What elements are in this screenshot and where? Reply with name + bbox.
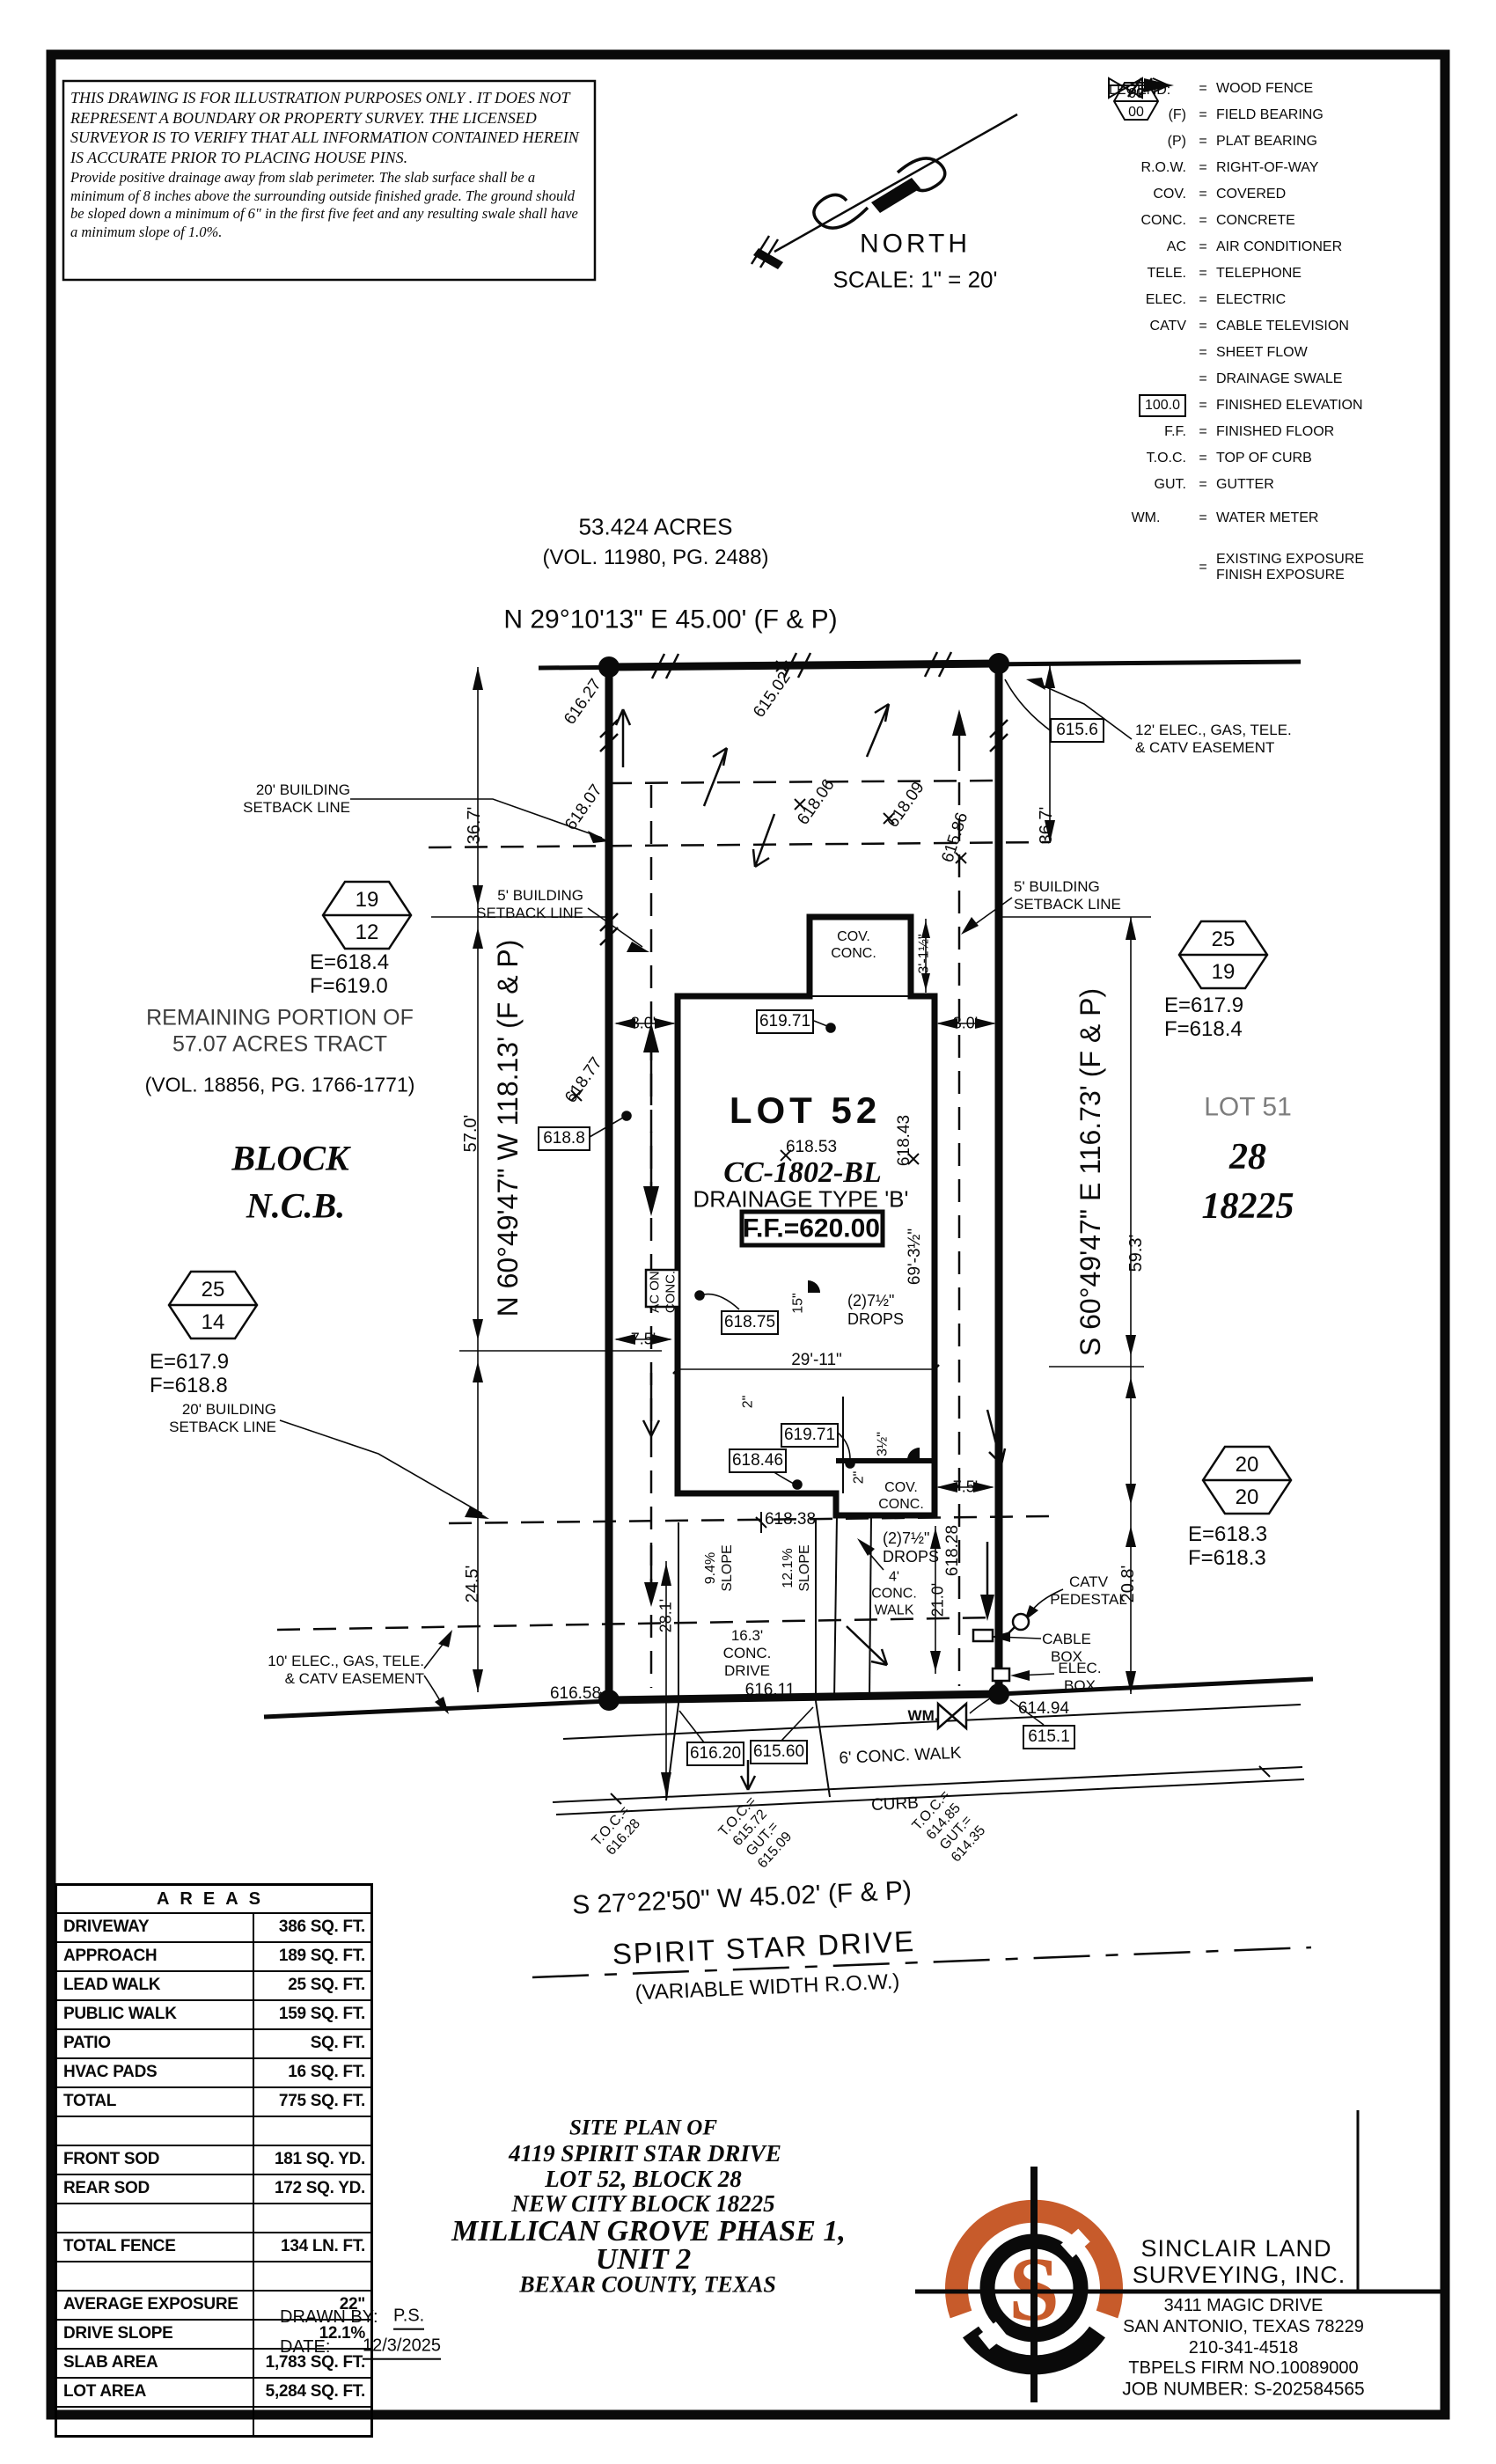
bearing-north: N 29°10'13" E 45.00' (F & P) [503, 604, 837, 634]
legend-eq: = [1190, 451, 1216, 466]
finished-elev-615-1: 615.1 [1028, 1727, 1070, 1747]
dim-21-0: 21.0' [928, 1583, 947, 1617]
spot-618-28: 618.28 [943, 1525, 963, 1576]
legend-eq: = [1190, 239, 1216, 255]
elec-box-symbol [993, 1668, 1009, 1681]
row-value: 189 SQ. FT. [253, 1943, 370, 1970]
water-meter-icon: WM. [1105, 512, 1190, 524]
legend-sym: AC [1105, 239, 1190, 255]
legend-eq: = [1190, 81, 1216, 97]
firm-name-1: SINCLAIR LAND [1140, 2235, 1331, 2263]
legend-row: WM. =WATER METER [1105, 498, 1443, 539]
row-value: SQ. FT. [253, 2030, 370, 2057]
legend-row: CATV=CABLE TELEVISION [1105, 313, 1443, 340]
bearing-west: N 60°49'47" W 118.13' (F & P) [492, 940, 525, 1317]
lot51-ncb-number: 18225 [1202, 1185, 1294, 1229]
row-label: LOT AREA [57, 2379, 253, 2406]
row-label [57, 2408, 253, 2435]
finished-elev-618-8: 618.8 [543, 1129, 585, 1148]
table-row: TOTAL FENCE134 LN. FT. [57, 2233, 370, 2262]
row-value: 181 SQ. YD. [253, 2146, 370, 2174]
dim-36-7-right: 36.7' [1037, 807, 1058, 845]
legend-eq: = [1190, 319, 1216, 334]
table-row: APPROACH189 SQ. FT. [57, 1943, 370, 1972]
drainage-type: DRAINAGE TYPE 'B' [693, 1186, 909, 1214]
dim-8-0-right: 8.0' [953, 1014, 978, 1032]
spot-614-94: 614.94 [1018, 1699, 1069, 1719]
easement-12ft-label: 12' ELEC., GAS, TELE. & CATV EASEMENT [1135, 722, 1292, 757]
legend-eq: = [1190, 160, 1216, 176]
legend: LEGEND: =WOOD FENCE (F)=FIELD BEARING (P… [1105, 76, 1443, 597]
row-label: HVAC PADS [57, 2059, 253, 2086]
disclaimer-caps: THIS DRAWING IS FOR ILLUSTRATION PURPOSE… [70, 88, 586, 167]
row-label: FRONT SOD [57, 2146, 253, 2174]
row-value [253, 2204, 370, 2232]
row-value [253, 2262, 370, 2290]
slope-12-1-label: 12.1% SLOPE [781, 1544, 814, 1591]
firm-tbpels: TBPELS FIRM NO.10089000 [1128, 2358, 1358, 2380]
finished-elev-615-6: 615.6 [1056, 721, 1098, 740]
water-meter-symbol [938, 1704, 966, 1728]
hex-se-bottom: 20 [1236, 1485, 1259, 1510]
water-meter-label: WM. [908, 1707, 939, 1725]
legend-row: 00 00 = EXISTING EXPOSUREFINISH EXPOSURE [1105, 539, 1443, 597]
legend-def: CONCRETE [1216, 213, 1295, 229]
legend-eq: = [1190, 187, 1216, 202]
hex-ne-finish: F=618.4 [1164, 1017, 1243, 1042]
dim-2in-a: 2" [741, 1396, 758, 1409]
dim-59-3: 59.3' [1126, 1235, 1148, 1272]
legend-def: EXISTING EXPOSUREFINISH EXPOSURE [1216, 552, 1364, 583]
tract-volume: (VOL. 11980, PG. 2488) [542, 546, 768, 570]
legend-def: TOP OF CURB [1216, 451, 1312, 466]
legend-sym: CATV [1105, 319, 1190, 334]
legend-eq: = [1190, 266, 1216, 282]
drawn-by-value: P.S. [393, 2306, 424, 2330]
row-label: REAR SOD [57, 2175, 253, 2203]
dim-2in-b: 2" [852, 1471, 869, 1485]
legend-eq: = [1190, 345, 1216, 361]
legend-eq: = [1190, 371, 1216, 387]
walk-4ft-label: 4' CONC. WALK [871, 1570, 917, 1620]
legend-def: RIGHT-OF-WAY [1216, 160, 1318, 176]
easement-10ft-label: 10' ELEC., GAS, TELE. & CATV EASEMENT [268, 1653, 424, 1688]
dim-36-7-left: 36.7' [465, 807, 486, 845]
catv-pedestal-symbol [1013, 1614, 1029, 1630]
site-plan-sheet: S THIS DRAWING IS FOR ILLUSTRATION PURPO… [0, 0, 1496, 2464]
setback-20ft-label-top: 20' BUILDING SETBACK LINE [243, 781, 350, 817]
table-row [57, 2408, 370, 2435]
firm-phone: 210-341-4518 [1189, 2338, 1299, 2359]
hex-w-top: 25 [202, 1278, 225, 1302]
title-line-1: SITE PLAN OF [569, 2115, 717, 2141]
finished-elev-615-60: 615.60 [753, 1742, 804, 1762]
legend-sym: GUT. [1105, 477, 1190, 493]
hex-nw-finish: F=619.0 [310, 974, 388, 999]
legend-row: (P)=PLAT BEARING [1105, 128, 1443, 155]
firm-address-1: 3411 MAGIC DRIVE [1164, 2296, 1324, 2317]
dim-7-5-right: 7.5' [953, 1478, 978, 1496]
dim-7-5-left: 7.5' [631, 1330, 656, 1348]
legend-row: GUT.=GUTTER [1105, 472, 1443, 498]
spot-616-11: 616.11 [745, 1681, 796, 1700]
legend-sym: (P) [1105, 134, 1190, 150]
spot-618-43: 618.43 [895, 1115, 914, 1166]
disclaimer-drainage-note: Provide positive drainage away from slab… [70, 169, 586, 242]
remaining-tract-label: REMAINING PORTION OF 57.07 ACRES TRACT [146, 1006, 414, 1058]
hex-nw-existing: E=618.4 [310, 950, 389, 975]
row-value: 775 SQ. FT. [253, 2088, 370, 2116]
svg-text:00: 00 [1128, 105, 1144, 120]
lot-51-label: LOT 51 [1204, 1091, 1292, 1122]
drops-label-front: (2)7½" DROPS [883, 1529, 939, 1566]
legend-eq: = [1190, 107, 1216, 123]
table-row: PATIOSQ. FT. [57, 2030, 370, 2059]
lot51-block-number: 28 [1229, 1136, 1266, 1180]
row-label [57, 2204, 253, 2232]
table-row: PUBLIC WALK159 SQ. FT. [57, 2001, 370, 2030]
setback-5ft-label-left: 5' BUILDING SETBACK LINE [476, 887, 583, 922]
legend-row: R.O.W.=RIGHT-OF-WAY [1105, 155, 1443, 181]
hex-w-existing: E=617.9 [150, 1350, 229, 1375]
remaining-tract-volume: (VOL. 18856, PG. 1766-1771) [145, 1073, 415, 1096]
dim-57-0: 57.0' [461, 1115, 482, 1153]
cov-conc-rear-label: COV. CONC. [831, 929, 876, 963]
title-county: BEXAR COUNTY, TEXAS [519, 2272, 776, 2299]
hex-se-finish: F=618.3 [1188, 1546, 1266, 1571]
legend-eq: = [1190, 560, 1216, 576]
drawn-by-label: DRAWN BY: [280, 2307, 378, 2328]
row-value [253, 2408, 370, 2435]
table-row [57, 2117, 370, 2146]
row-label: DRIVEWAY [57, 1914, 253, 1941]
row-label: PATIO [57, 2030, 253, 2057]
finished-elev-618-75: 618.75 [724, 1313, 775, 1332]
table-row: TOTAL775 SQ. FT. [57, 2088, 370, 2117]
row-value: 134 LN. FT. [253, 2233, 370, 2261]
legend-def: DRAINAGE SWALE [1216, 371, 1342, 387]
date-label: DATE: [280, 2337, 330, 2358]
dim-8-0-left: 8.0' [631, 1014, 656, 1032]
dim-15in: 15" [791, 1293, 808, 1313]
ncb-word: N.C.B. [246, 1184, 345, 1226]
finished-elev-618-46: 618.46 [732, 1451, 783, 1470]
setback-20ft-label-front: 20' BUILDING SETBACK LINE [169, 1401, 276, 1436]
svg-text:00: 00 [1128, 86, 1144, 101]
legend-def: AIR CONDITIONER [1216, 239, 1342, 255]
elec-box-label: ELEC. BOX [1058, 1660, 1101, 1695]
hex-ne-top: 25 [1212, 928, 1236, 952]
dim-3half: 3½" [876, 1432, 892, 1456]
hex-se-top: 20 [1236, 1453, 1259, 1478]
table-row: LEAD WALK25 SQ. FT. [57, 1972, 370, 2001]
legend-row: F.F.=FINISHED FLOOR [1105, 419, 1443, 445]
finished-floor-elevation: F.F.=620.00 [743, 1213, 880, 1243]
legend-eq: = [1190, 477, 1216, 493]
catv-pedestal-label: CATV PEDESTAL [1050, 1573, 1127, 1609]
spot-618-53: 618.53 [786, 1138, 837, 1157]
ac-pad-label: AC ON CONC. [647, 1271, 678, 1313]
title-line-2: 4119 SPIRIT STAR DRIVE [509, 2140, 781, 2168]
row-label: APPROACH [57, 1943, 253, 1970]
legend-row: 100.0 =FINISHED ELEVATION [1105, 392, 1443, 419]
row-label: TOTAL [57, 2088, 253, 2116]
row-label: PUBLIC WALK [57, 2001, 253, 2028]
legend-def: FINISHED ELEVATION [1216, 398, 1363, 414]
row-label: TOTAL FENCE [57, 2233, 253, 2261]
table-row: REAR SOD172 SQ. YD. [57, 2175, 370, 2204]
row-label: LEAD WALK [57, 1972, 253, 1999]
legend-def: TELEPHONE [1216, 266, 1302, 282]
row-value: 159 SQ. FT. [253, 2001, 370, 2028]
row-label: AVERAGE EXPOSURE [57, 2292, 253, 2319]
row-value [253, 2117, 370, 2145]
finished-elevation-icon: 100.0 [1105, 394, 1190, 417]
legend-def: GUTTER [1216, 477, 1274, 493]
dim-28-1: 28.1' [656, 1599, 675, 1632]
legend-sym: T.O.C. [1105, 451, 1190, 466]
row-label [57, 2117, 253, 2145]
dim-29-11: 29'-11" [791, 1351, 842, 1370]
row-label: SLAB AREA [57, 2350, 253, 2377]
legend-row: TELE.=TELEPHONE [1105, 260, 1443, 287]
legend-row: CONC.=CONCRETE [1105, 208, 1443, 234]
tract-acreage: 53.424 ACRES [579, 514, 733, 541]
utility-symbols [938, 1614, 1029, 1728]
table-row [57, 2262, 370, 2292]
curb-label: CURB [871, 1794, 920, 1816]
table-row: HVAC PADS16 SQ. FT. [57, 2059, 370, 2088]
legend-eq: = [1190, 510, 1216, 526]
setback-5ft-label-right: 5' BUILDING SETBACK LINE [1014, 878, 1121, 913]
row-value: 25 SQ. FT. [253, 1972, 370, 1999]
row-value: 172 SQ. YD. [253, 2175, 370, 2203]
lot-52-label: LOT 52 [730, 1089, 881, 1133]
row-value: 16 SQ. FT. [253, 2059, 370, 2086]
hex-nw-top: 19 [356, 888, 379, 913]
slope-9-4-label: 9.4% SLOPE [703, 1544, 737, 1591]
block-word: BLOCK [231, 1137, 348, 1178]
legend-sym: WM. [1105, 512, 1186, 524]
legend-def: WOOD FENCE [1216, 81, 1313, 97]
legend-def: CABLE TELEVISION [1216, 319, 1349, 334]
table-row [57, 2204, 370, 2233]
legend-sym: CONC. [1105, 213, 1190, 229]
row-value: 386 SQ. FT. [253, 1914, 370, 1941]
legend-row: =SHEET FLOW [1105, 340, 1443, 366]
legend-sym: ELEC. [1105, 292, 1190, 308]
hex-nw-bottom: 12 [356, 920, 379, 945]
scale-label: SCALE: 1" = 20' [833, 267, 998, 294]
legend-row: =DRAINAGE SWALE [1105, 366, 1443, 392]
spot-616-58: 616.58 [550, 1684, 601, 1704]
legend-def: ELECTRIC [1216, 292, 1286, 308]
legend-sym: COV. [1105, 187, 1190, 202]
table-row: DRIVEWAY386 SQ. FT. [57, 1914, 370, 1943]
legend-row: AC=AIR CONDITIONER [1105, 234, 1443, 260]
legend-eq: = [1190, 398, 1216, 414]
hex-se-existing: E=618.3 [1188, 1522, 1267, 1547]
firm-address-2: SAN ANTONIO, TEXAS 78229 [1123, 2317, 1364, 2338]
legend-eq: = [1190, 292, 1216, 308]
legend-def-line1: EXISTING EXPOSURE [1216, 552, 1364, 567]
legend-def: WATER METER [1216, 510, 1318, 526]
row-label [57, 2262, 253, 2290]
bearing-east: S 60°49'47" E 116.73' (F & P) [1074, 988, 1108, 1356]
legend-sym: 100.0 [1139, 394, 1186, 417]
firm-name-2: SURVEYING, INC. [1133, 2262, 1346, 2290]
north-label: NORTH [860, 228, 971, 259]
legend-def-line2: FINISH EXPOSURE [1216, 568, 1345, 583]
legend-def: FIELD BEARING [1216, 107, 1324, 123]
legend-eq: = [1190, 424, 1216, 440]
row-label: DRIVE SLOPE [57, 2321, 253, 2348]
areas-table-title: AREAS [57, 1886, 370, 1914]
legend-row: ELEC.=ELECTRIC [1105, 287, 1443, 313]
legend-sym: R.O.W. [1105, 160, 1190, 176]
spot-618-38: 618.38 [765, 1510, 816, 1529]
hex-ne-existing: E=617.9 [1164, 994, 1243, 1018]
legend-sym: F.F. [1105, 424, 1190, 440]
hex-w-finish: F=618.8 [150, 1374, 228, 1398]
cov-conc-front-label: COV. CONC. [878, 1480, 924, 1514]
table-row: LOT AREA5,284 SQ. FT. [57, 2379, 370, 2408]
dim-69-3half: 69'-3½" [906, 1228, 925, 1285]
dim-3ft-1half: 3'-1½" [917, 934, 934, 973]
legend-sym: TELE. [1105, 266, 1190, 282]
finished-elev-619-71-front: 619.71 [784, 1426, 835, 1445]
finished-elev-616-20: 616.20 [690, 1744, 741, 1764]
legend-eq: = [1190, 134, 1216, 150]
legend-def: FINISHED FLOOR [1216, 424, 1334, 440]
dim-24-5: 24.5' [463, 1566, 484, 1603]
table-row: FRONT SOD181 SQ. YD. [57, 2146, 370, 2175]
legend-row: T.O.C.=TOP OF CURB [1105, 445, 1443, 472]
date-value: 12/3/2025 [363, 2336, 441, 2360]
drive-16-3-label: 16.3' CONC. DRIVE [723, 1627, 772, 1680]
legend-row: COV.=COVERED [1105, 181, 1443, 208]
drops-label-rear: (2)7½" DROPS [847, 1292, 904, 1329]
cable-box-symbol [973, 1630, 993, 1641]
row-value: 5,284 SQ. FT. [253, 2379, 370, 2406]
wood-fence-marks [600, 652, 1008, 945]
legend-def: SHEET FLOW [1216, 345, 1308, 361]
finished-elev-619-71-rear: 619.71 [759, 1012, 810, 1031]
disclaimer-note: THIS DRAWING IS FOR ILLUSTRATION PURPOSE… [70, 88, 586, 242]
legend-eq: = [1190, 213, 1216, 229]
legend-def: PLAT BEARING [1216, 134, 1317, 150]
hex-w-bottom: 14 [202, 1310, 225, 1335]
legend-def: COVERED [1216, 187, 1286, 202]
hex-ne-bottom: 19 [1212, 960, 1236, 985]
firm-job-number: JOB NUMBER: S-202584565 [1122, 2380, 1364, 2402]
